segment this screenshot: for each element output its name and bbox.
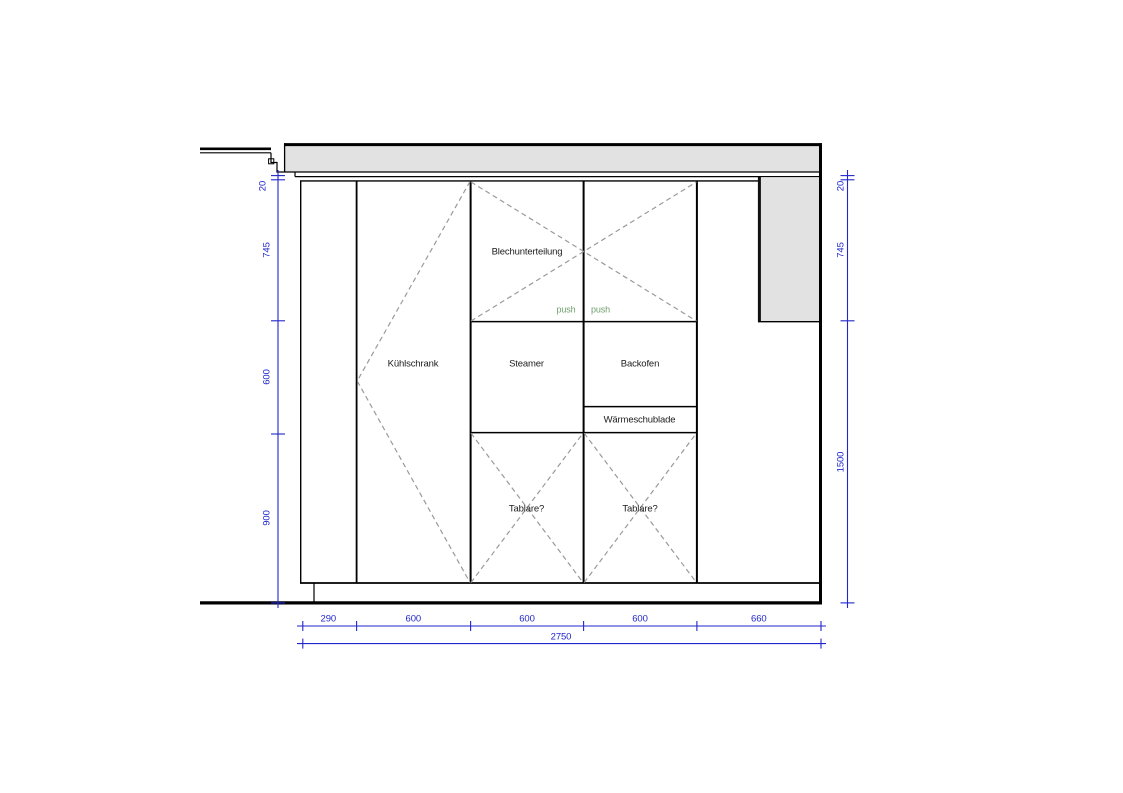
cabinet-outline: [300, 181, 820, 603]
left-wall-stub: [200, 149, 284, 172]
label-steamer: Steamer: [509, 359, 544, 369]
cabinet-dividers: [357, 181, 697, 583]
label-push-left: push: [557, 306, 576, 315]
dim-left-gap: 20: [258, 180, 268, 190]
right-side-panel: [758, 177, 819, 322]
dim-left-upper: 745: [262, 242, 272, 258]
dashed-door-swing-marks: [357, 182, 696, 583]
dim-left-middle: 600: [262, 370, 272, 386]
label-warming-drawer: Wärmeschublade: [604, 415, 676, 425]
label-push-right: push: [591, 306, 610, 315]
fridge-door-swing-dashes: [357, 182, 470, 583]
dim-bottom-seg2: 600: [406, 614, 422, 624]
dim-total-width: 2750: [551, 632, 572, 642]
dim-right-lower: 1500: [836, 452, 846, 473]
label-sheet-divider: Blechunterteilung: [492, 247, 563, 257]
dim-bottom-seg3: 600: [519, 614, 535, 624]
drawing-canvas: [0, 0, 1123, 793]
cad-drawing-page: Kühlschrank Blechunterteilung Steamer Ba…: [0, 0, 1123, 793]
dim-bottom-seg4: 600: [632, 614, 648, 624]
dim-bottom-seg1: 290: [321, 614, 337, 624]
label-oven: Backofen: [621, 359, 659, 369]
label-shelves-right: Tablare?: [622, 504, 657, 514]
dim-left-lower: 900: [262, 511, 272, 527]
ceiling-panel: [284, 143, 822, 177]
dim-right-gap: 20: [836, 181, 846, 191]
label-shelves-left: Tablare?: [509, 504, 544, 514]
dim-right-upper: 745: [836, 242, 846, 258]
label-fridge: Kühlschrank: [388, 359, 439, 369]
dim-bottom-seg5: 660: [751, 614, 767, 624]
